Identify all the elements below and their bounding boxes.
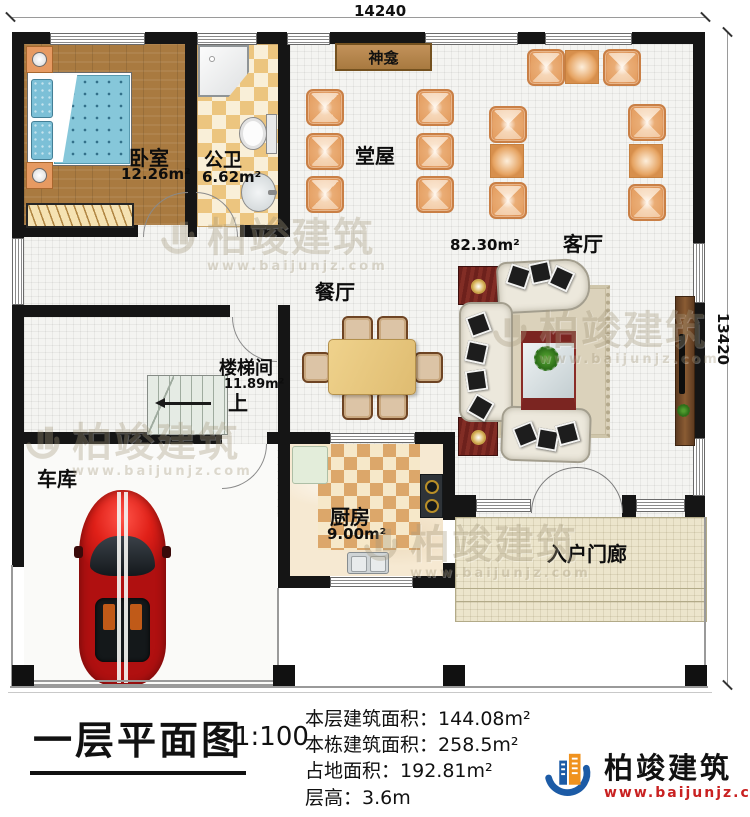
car-top-view	[79, 490, 166, 686]
armchair	[489, 182, 527, 219]
ground-line	[10, 686, 708, 688]
footer-divider	[8, 692, 712, 693]
stat-label: 层高：	[305, 787, 362, 809]
window	[476, 499, 531, 512]
living-label: 客厅	[563, 234, 603, 255]
armchair	[527, 49, 565, 86]
dining-label: 餐厅	[315, 282, 355, 303]
window	[425, 33, 518, 45]
dimension-top-label: 14240	[354, 2, 406, 20]
wall	[267, 432, 290, 444]
plant-icon	[534, 346, 559, 371]
bed-pillow	[31, 79, 53, 118]
shrine: 神龛	[335, 43, 432, 71]
armchair	[306, 176, 344, 213]
plant-icon	[677, 404, 690, 417]
wall	[518, 32, 545, 44]
tv-cabinet	[675, 296, 695, 446]
dining-table	[328, 339, 416, 395]
armchair	[306, 89, 344, 126]
stove-burner-icon	[425, 499, 439, 513]
window	[197, 33, 257, 45]
toilet-bowl	[239, 117, 267, 150]
car-mirror	[162, 546, 171, 558]
window	[545, 33, 632, 45]
sink-basin	[351, 556, 367, 572]
stat-label: 占地面积：	[305, 760, 400, 782]
wall	[12, 32, 24, 238]
fridge	[292, 446, 328, 484]
window	[636, 499, 685, 512]
kitchen-area: 9.00m²	[327, 527, 386, 543]
faucet-icon	[268, 190, 277, 195]
toilet-tank	[266, 114, 277, 154]
brand-logo-icon	[538, 748, 596, 806]
window	[330, 577, 413, 587]
stat-building-area: 本栋建筑面积：258.5m²	[305, 730, 519, 757]
stove-burner-icon	[425, 480, 439, 494]
wall	[693, 32, 705, 243]
tea-table	[565, 50, 599, 84]
stat-value: 258.5m²	[438, 734, 519, 756]
armchair	[416, 89, 454, 126]
stove	[420, 474, 443, 518]
window-kitchen-pass	[330, 433, 415, 443]
stat-value: 3.6m	[362, 787, 411, 809]
wall	[12, 305, 230, 317]
window	[693, 243, 705, 303]
wall	[685, 495, 705, 517]
open-area-label: 82.30m²	[450, 238, 520, 254]
window	[287, 33, 330, 45]
sofa-cushion	[464, 340, 489, 365]
stat-land-area: 占地面积：192.81m²	[305, 756, 493, 783]
dimension-right-label: 13420	[714, 309, 732, 369]
wall	[257, 32, 287, 44]
wall	[278, 305, 290, 444]
column	[12, 665, 34, 686]
nightstand	[26, 46, 53, 73]
page-title: 一层平面图	[30, 710, 246, 775]
bedroom-area: 12.26m²	[121, 167, 191, 183]
nightstand	[26, 162, 53, 189]
stairwell-up-label: 上	[228, 393, 248, 414]
armchair	[628, 104, 666, 141]
column	[273, 665, 295, 686]
stat-label: 本层建筑面积：	[305, 708, 438, 730]
dining-chair	[302, 352, 331, 383]
wall	[290, 432, 330, 444]
dining-chair	[414, 352, 443, 383]
wall	[443, 432, 455, 520]
window	[50, 33, 145, 45]
tea-table	[629, 144, 663, 178]
armchair	[306, 133, 344, 170]
floor-plan-canvas: 14240 13420	[0, 0, 750, 817]
stairs-arrow	[163, 402, 211, 405]
armchair	[628, 184, 666, 221]
stat-storey-height: 层高：3.6m	[305, 783, 411, 810]
stat-value: 192.81m²	[400, 760, 493, 782]
armchair	[416, 133, 454, 170]
window	[12, 238, 24, 305]
bed-pillow	[31, 121, 53, 160]
shrine-label: 神龛	[368, 47, 398, 68]
wall	[240, 225, 290, 237]
brand-website: www.baijunjz.com	[604, 785, 750, 801]
dining-chair	[377, 391, 408, 420]
wall	[622, 495, 636, 517]
kitchen-sink	[347, 552, 389, 574]
column	[443, 665, 465, 686]
porch-step-line	[455, 588, 705, 589]
porch-label: 入户门廊	[547, 544, 627, 565]
garage-door-line	[34, 680, 274, 682]
stairwell-area: 11.89m²	[224, 378, 284, 392]
shower-drain	[209, 56, 215, 62]
tv-icon	[679, 334, 685, 394]
room-porch-floor	[455, 517, 707, 622]
armchair	[603, 49, 641, 86]
porch-step-line	[455, 601, 705, 602]
end-table	[458, 417, 498, 456]
stairs-arrow-head	[155, 398, 165, 408]
site-line	[277, 588, 279, 666]
wall	[278, 44, 290, 237]
wardrobe	[26, 203, 134, 228]
stat-value: 144.08m²	[438, 708, 531, 730]
wall	[145, 32, 197, 44]
scale-label: 1:100	[234, 722, 309, 752]
wall	[278, 576, 330, 588]
brand-name: 柏竣建筑	[604, 754, 750, 783]
brand-logo: 柏竣建筑 www.baijunjz.com	[538, 748, 750, 806]
sink-basin	[370, 556, 386, 572]
hall-label: 堂屋	[355, 146, 395, 167]
bed	[27, 72, 132, 166]
sofa-cushion	[465, 369, 489, 393]
car-engine-detail	[130, 604, 142, 630]
dining-chair	[342, 391, 373, 420]
column	[685, 665, 707, 686]
garage-label: 车库	[37, 469, 77, 490]
tea-table	[490, 144, 524, 178]
car-stripe	[117, 492, 128, 683]
wall	[278, 444, 290, 588]
stat-floor-area: 本层建筑面积：144.08m²	[305, 704, 531, 731]
stat-label: 本栋建筑面积：	[305, 734, 438, 756]
bathroom-area: 6.62m²	[202, 170, 261, 186]
armchair	[416, 176, 454, 213]
site-line	[704, 517, 706, 666]
wall	[413, 576, 455, 588]
armchair	[489, 106, 527, 143]
window	[693, 438, 705, 496]
car-mirror	[74, 546, 83, 558]
wall	[455, 495, 476, 517]
car-engine-detail	[103, 604, 115, 630]
end-table	[458, 266, 498, 305]
